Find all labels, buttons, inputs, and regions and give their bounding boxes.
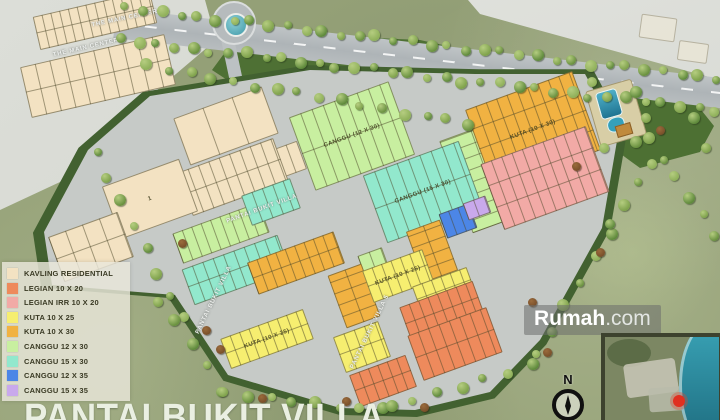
tree-marker [401, 66, 413, 78]
tree-marker [165, 67, 173, 75]
compass-ring-icon [552, 389, 584, 420]
tree-marker [140, 58, 152, 70]
tree-marker [495, 46, 503, 54]
bush-marker [420, 403, 429, 412]
tree-marker [377, 103, 387, 113]
tree-marker [642, 98, 650, 106]
tree-marker [461, 46, 471, 56]
tree-marker [532, 49, 544, 61]
tree-marker [442, 41, 450, 49]
tree-marker [355, 31, 365, 41]
tree-marker [683, 192, 695, 204]
tree-marker [688, 112, 700, 124]
tree-marker [314, 93, 324, 103]
legend-item-label: CANGGU 15 X 35 [24, 386, 88, 395]
tree-marker [696, 103, 704, 111]
legend-item: CANGGU 15 X 30 [7, 356, 126, 367]
tree-marker [641, 113, 651, 123]
tree-marker [284, 21, 292, 29]
tree-marker [566, 55, 576, 65]
tree-marker [630, 136, 642, 148]
tree-marker [315, 25, 327, 37]
legend-item: KUTA 10 X 25 [7, 312, 126, 323]
tree-marker [153, 297, 163, 307]
tree-marker [457, 382, 469, 394]
legend-item: LEGIAN IRR 10 X 20 [7, 297, 126, 308]
tree-marker [229, 77, 237, 85]
tree-marker [292, 87, 300, 95]
bush-marker [596, 248, 605, 257]
tree-marker [241, 46, 253, 58]
tree-marker [602, 92, 612, 102]
bush-marker [572, 162, 581, 171]
rumah-watermark: Rumah.com [524, 305, 661, 335]
tree-marker [188, 42, 200, 54]
compass-north-label: N [546, 372, 590, 387]
tree-marker [647, 159, 657, 169]
tree-marker [262, 20, 274, 32]
legend-item-label: CANGGU 12 X 30 [24, 342, 88, 351]
tree-marker [143, 243, 153, 253]
tree-marker [169, 43, 179, 53]
tree-marker [678, 70, 688, 80]
tree-marker [244, 15, 254, 25]
tree-marker [218, 387, 228, 397]
tree-marker [263, 54, 271, 62]
tree-marker [606, 228, 618, 240]
tree-marker [426, 40, 438, 52]
legend-swatch [7, 370, 18, 381]
tree-marker [476, 78, 484, 86]
tree-marker [187, 338, 199, 350]
tree-marker [669, 171, 679, 181]
tree-marker [408, 397, 416, 405]
tree-marker [532, 350, 540, 358]
tree-marker [638, 64, 650, 76]
compass-needle-icon [565, 395, 571, 415]
location-inset-map [601, 333, 720, 420]
tree-marker [337, 32, 345, 40]
tree-marker [530, 83, 538, 91]
tree-marker [432, 387, 442, 397]
tree-marker [302, 26, 312, 36]
tree-marker [709, 107, 719, 117]
tree-marker [157, 5, 169, 17]
legend-item-label: KUTA 10 X 30 [24, 327, 74, 336]
tree-marker [336, 93, 348, 105]
tree-marker [316, 59, 324, 67]
tree-marker [709, 231, 719, 241]
tree-marker [329, 63, 339, 73]
tree-marker [231, 17, 239, 25]
legend-item: CANGGU 12 X 35 [7, 370, 126, 381]
legend-item-label: LEGIAN 10 X 20 [24, 284, 83, 293]
tree-marker [370, 63, 378, 71]
tree-marker [187, 67, 197, 77]
bush-marker [202, 326, 211, 335]
legend-item-label: CANGGU 15 X 30 [24, 357, 88, 366]
tree-marker [659, 66, 667, 74]
legend-item: KUTA 10 X 30 [7, 326, 126, 337]
legend-item-label: KAVLING RESIDENTIAL [24, 269, 113, 278]
tree-marker [203, 361, 211, 369]
compass-rose: N [546, 372, 590, 420]
tree-marker [503, 369, 513, 379]
tree-marker [168, 314, 180, 326]
legend-swatch [7, 268, 18, 279]
legend-swatch [7, 326, 18, 337]
tree-marker [479, 44, 491, 56]
tree-marker [548, 88, 558, 98]
bush-marker [543, 348, 552, 357]
tree-marker [120, 2, 128, 10]
tree-marker [423, 74, 431, 82]
tree-marker [514, 50, 524, 60]
tree-marker [583, 94, 591, 102]
tree-marker [178, 12, 186, 20]
tree-marker [179, 312, 189, 322]
tree-marker [399, 109, 411, 121]
tree-marker [355, 102, 363, 110]
tree-marker [116, 33, 126, 43]
legend-item: CANGGU 12 X 30 [7, 341, 126, 352]
tree-marker [440, 113, 450, 123]
legend-item-label: CANGGU 12 X 35 [24, 371, 88, 380]
legend-item-label: LEGIAN IRR 10 X 20 [24, 298, 99, 307]
legend-item: KAVLING RESIDENTIAL [7, 268, 126, 279]
tree-marker [567, 86, 579, 98]
tree-marker [368, 29, 380, 41]
tree-marker [634, 178, 642, 186]
tree-marker [462, 119, 474, 131]
tree-marker [94, 148, 102, 156]
tree-marker [386, 400, 398, 412]
tree-marker [223, 48, 233, 58]
legend-swatch [7, 341, 18, 352]
legend-item: LEGIAN 10 X 20 [7, 283, 126, 294]
tree-marker [630, 86, 642, 98]
tree-marker [272, 83, 284, 95]
tree-marker [134, 37, 146, 49]
tree-marker [660, 156, 668, 164]
tree-marker [442, 72, 452, 82]
inset-sea-area [679, 333, 720, 420]
tree-marker [295, 57, 307, 69]
tree-marker [553, 57, 561, 65]
tree-marker [576, 279, 584, 287]
tree-marker [424, 112, 432, 120]
tree-marker [138, 6, 148, 16]
tree-marker [527, 358, 539, 370]
tree-marker [674, 101, 686, 113]
tree-marker [130, 222, 138, 230]
location-marker-icon [673, 395, 685, 407]
tree-marker [455, 77, 467, 89]
tree-marker [276, 52, 286, 62]
tree-marker [643, 132, 655, 144]
tree-marker [712, 76, 720, 84]
tree-marker [191, 11, 201, 21]
tree-marker [587, 77, 597, 87]
watermark-brand: Rumah [534, 307, 605, 330]
tree-marker [585, 60, 597, 72]
legend-item: CANGGU 15 X 35 [7, 385, 126, 396]
bush-marker [656, 126, 665, 135]
tree-marker [348, 62, 360, 74]
legend-item-label: KUTA 10 X 25 [24, 313, 74, 322]
tree-marker [408, 35, 418, 45]
legend-swatch [7, 312, 18, 323]
tree-marker [101, 173, 111, 183]
legend-swatch [7, 385, 18, 396]
legend-swatch [7, 297, 18, 308]
tree-marker [151, 39, 159, 47]
tree-marker [388, 68, 398, 78]
tree-marker [150, 268, 162, 280]
tree-marker [606, 61, 614, 69]
tree-marker [114, 194, 126, 206]
tree-marker [619, 60, 629, 70]
tree-marker [495, 77, 505, 87]
tree-marker [691, 69, 703, 81]
tree-marker [599, 143, 609, 153]
tree-marker [204, 73, 216, 85]
tree-marker [700, 210, 708, 218]
bush-marker [216, 345, 225, 354]
tree-marker [605, 219, 615, 229]
site-plan-image: 1CANGGU (12 X 30)CANGGU (15 X 30)KUTA (1… [0, 0, 720, 420]
tree-marker [209, 15, 221, 27]
tree-marker [701, 143, 711, 153]
project-title: PANTAI BUKIT VILLA [24, 397, 384, 420]
tree-marker [618, 199, 630, 211]
tree-marker [389, 37, 397, 45]
watermark-suffix: .com [605, 307, 651, 330]
tree-marker [655, 97, 665, 107]
tree-marker [204, 49, 212, 57]
bush-marker [178, 239, 187, 248]
legend-list: KAVLING RESIDENTIALLEGIAN 10 X 20LEGIAN … [7, 268, 126, 396]
tree-marker [166, 292, 174, 300]
legend-swatch [7, 283, 18, 294]
tree-marker [514, 81, 526, 93]
legend-swatch [7, 356, 18, 367]
legend-panel: KAVLING RESIDENTIALLEGIAN 10 X 20LEGIAN … [2, 262, 130, 401]
tree-marker [478, 374, 486, 382]
tree-marker [250, 83, 260, 93]
